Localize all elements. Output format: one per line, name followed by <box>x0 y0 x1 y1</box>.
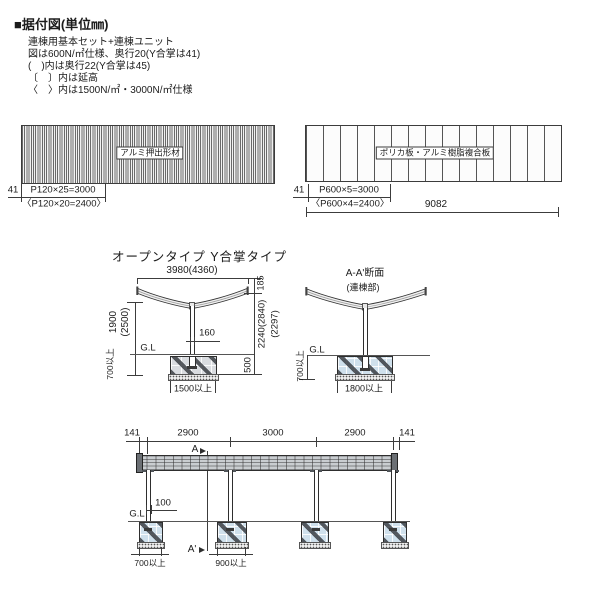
dim-tick <box>170 381 171 393</box>
dim-tick <box>218 374 262 375</box>
dim-span: 2900 <box>177 428 198 438</box>
dim-pitch-left: P120×25=3000 <box>31 185 96 195</box>
dim-tick <box>146 505 147 514</box>
side-foundation <box>139 522 163 544</box>
dim-embed-front: 700以上 <box>106 348 115 379</box>
dim-span: 3000 <box>262 428 283 438</box>
section-arrow-icon <box>199 547 205 553</box>
post-anchor <box>144 528 152 531</box>
dim-tick <box>390 184 391 202</box>
section-gravel-base <box>335 374 395 381</box>
post-anchor <box>226 528 234 531</box>
ground-label-section: G.L <box>309 345 324 355</box>
front-post <box>190 306 195 355</box>
side-gravel-base <box>215 542 249 549</box>
dim-tick <box>391 381 392 393</box>
dim-tick <box>139 437 140 454</box>
dim-edge-right: 41 <box>294 185 305 195</box>
dim-line-total <box>306 212 558 213</box>
dim-tick <box>558 207 559 217</box>
side-foundation <box>217 522 247 544</box>
dim-tick <box>127 375 143 376</box>
side-gravel-base <box>299 542 331 549</box>
section-mark-a-prime: A' <box>188 545 197 555</box>
ground-label-side: G.L <box>129 509 144 519</box>
dim-tick <box>337 381 338 393</box>
dim-line <box>209 554 253 555</box>
note-line: ( )内は奥行22(Y合掌は45) <box>28 61 150 73</box>
dim-pitch-left-alt: 〈P120×20=2400〉 <box>22 199 106 209</box>
dim-tick <box>308 184 309 202</box>
dim-span: 141 <box>399 428 415 438</box>
side-foundation <box>301 522 329 544</box>
section-post-anchor <box>360 368 370 371</box>
dim-tick <box>151 505 152 514</box>
side-view-beam <box>137 455 397 471</box>
dim-tick <box>244 293 262 294</box>
dim-tick <box>316 437 317 447</box>
y-roof-front <box>128 283 262 313</box>
dim-footing-width-front: 1500以上 <box>174 385 212 394</box>
post-anchor <box>312 528 320 531</box>
dim-footing-side-1: 700以上 <box>134 559 165 568</box>
note-line: 〈 〉内は1500N/㎡・3000N/㎡仕様 <box>28 85 193 97</box>
dim-line <box>131 554 169 555</box>
dim-roof-rise: 185 <box>257 275 266 290</box>
dim-span: 141 <box>124 428 140 438</box>
note-line: 図は600N/㎡仕様、奥行20(Y合掌は41) <box>28 49 200 61</box>
ground-line-side <box>128 521 410 522</box>
dim-line <box>186 341 220 342</box>
dim-post-width-side: 100 <box>155 498 171 508</box>
dim-tick <box>127 302 143 303</box>
section-view-title: A-A'断面 <box>346 269 385 279</box>
dim-footing-side-2: 900以上 <box>215 559 246 568</box>
side-gravel-base <box>381 542 409 549</box>
dim-height-alt: (2500) <box>121 308 131 337</box>
front-gravel-base <box>168 374 219 381</box>
dim-line <box>137 278 248 279</box>
page-title: ■据付図(単位㎜) <box>14 14 109 33</box>
dim-tick <box>393 437 394 450</box>
dim-span: 2900 <box>344 428 365 438</box>
dim-tick <box>194 337 195 345</box>
dim-width: 3980(4360) <box>166 266 217 276</box>
note-line: 連棟用基本セット+連棟ユニット <box>28 37 174 49</box>
dim-edge-left: 41 <box>8 185 19 195</box>
section-arrow-icon <box>200 448 206 454</box>
ground-line-front <box>130 354 254 355</box>
note-line: 〔 〕内は延高 <box>28 73 98 85</box>
section-post <box>363 308 368 355</box>
dim-footing-width-section: 1800以上 <box>345 385 383 394</box>
dim-line <box>126 441 415 442</box>
front-post-in-foundation <box>189 357 196 366</box>
dim-tick <box>215 381 216 393</box>
elevation-title: オープンタイプ Y合掌タイプ <box>112 246 287 265</box>
dim-post-width: 160 <box>199 328 215 338</box>
dim-footing-depth: 500 <box>243 357 253 373</box>
dim-tick <box>147 437 148 454</box>
dim-line <box>135 302 136 375</box>
section-post-in-foundation <box>362 357 369 368</box>
dim-clearance-alt: (2297) <box>270 310 280 337</box>
dim-line <box>307 355 308 379</box>
dim-total-length: 9082 <box>425 200 447 210</box>
dim-tick <box>306 207 307 217</box>
dim-tick <box>190 337 191 345</box>
dim-tick <box>399 437 400 450</box>
ground-label-front: G.L <box>140 343 155 353</box>
dim-pitch-right-alt: 〈P600×4=2400〉 <box>311 199 390 209</box>
section-mark-a: A <box>192 445 199 455</box>
roof-panel-aluminum-label: アルミ押出形材 <box>116 147 183 160</box>
dim-pitch-right: P600×5=3000 <box>319 185 379 195</box>
dim-embed-section: 700以上 <box>296 350 305 381</box>
side-foundation <box>383 522 407 544</box>
post-anchor <box>389 528 397 531</box>
dim-height: 1900 <box>109 311 119 333</box>
roof-panel-polycarbonate-label: ポリカ板・アルミ樹脂複合板 <box>376 147 494 160</box>
front-post-anchor <box>187 366 197 369</box>
dim-clearance: 2240(2840) <box>257 300 267 349</box>
installation-drawing-page: ■据付図(単位㎜) 連棟用基本セット+連棟ユニット 図は600N/㎡仕様、奥行2… <box>0 0 600 600</box>
dim-tick <box>230 437 231 447</box>
